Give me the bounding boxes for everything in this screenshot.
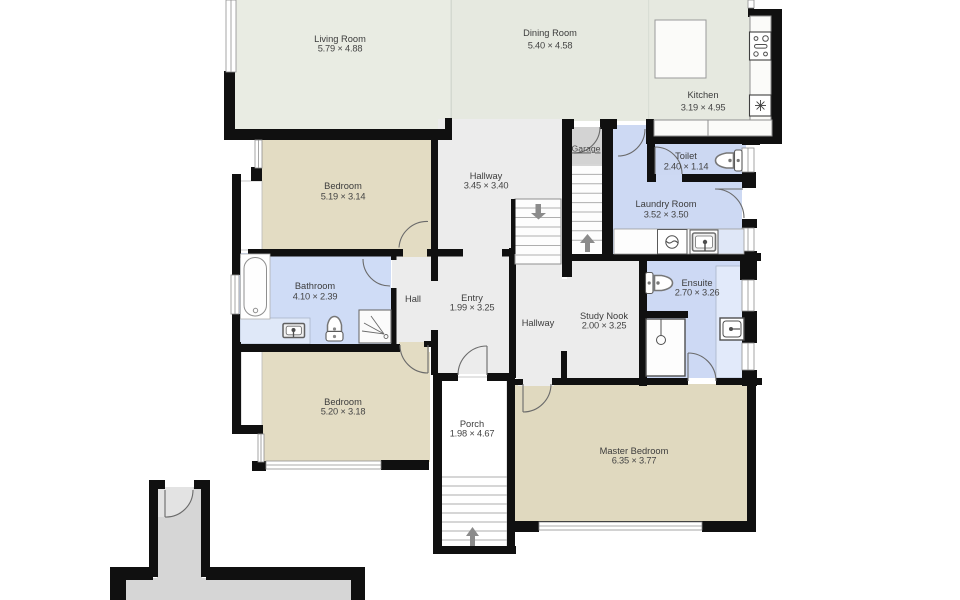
svg-text:Bathroom: Bathroom [295, 281, 336, 291]
svg-text:Entry: Entry [461, 293, 483, 303]
svg-text:5.19 × 3.14: 5.19 × 3.14 [321, 192, 366, 202]
svg-text:5.79 × 4.88: 5.79 × 4.88 [318, 44, 363, 54]
svg-text:Master Bedroom: Master Bedroom [600, 446, 669, 456]
svg-text:Kitchen: Kitchen [687, 90, 718, 100]
svg-text:Laundry Room: Laundry Room [636, 199, 697, 209]
svg-text:3.52 × 3.50: 3.52 × 3.50 [644, 210, 689, 220]
svg-text:Hall: Hall [405, 294, 421, 304]
svg-text:Toilet: Toilet [675, 151, 697, 161]
svg-text:2.40 × 1.14: 2.40 × 1.14 [664, 162, 709, 172]
svg-text:Garage: Garage [572, 144, 601, 154]
svg-text:6.35 × 3.77: 6.35 × 3.77 [612, 456, 657, 466]
svg-text:Porch: Porch [460, 419, 484, 429]
svg-text:2.00 × 3.25: 2.00 × 3.25 [582, 321, 627, 331]
svg-text:Living Room: Living Room [314, 34, 366, 44]
svg-text:Bedroom: Bedroom [324, 397, 362, 407]
svg-text:3.19 × 4.95: 3.19 × 4.95 [681, 103, 726, 113]
svg-text:2.70 × 3.26: 2.70 × 3.26 [675, 288, 720, 298]
svg-text:1.98 × 4.67: 1.98 × 4.67 [450, 429, 495, 439]
svg-text:3.45 × 3.40: 3.45 × 3.40 [464, 181, 509, 191]
svg-text:5.20 × 3.18: 5.20 × 3.18 [321, 407, 366, 417]
svg-text:Dining Room: Dining Room [523, 28, 577, 38]
svg-text:1.99 × 3.25: 1.99 × 3.25 [450, 303, 495, 313]
svg-text:Study Nook: Study Nook [580, 311, 628, 321]
svg-text:Hallway: Hallway [470, 171, 503, 181]
svg-text:Ensuite: Ensuite [681, 278, 712, 288]
svg-text:5.40 × 4.58: 5.40 × 4.58 [528, 41, 573, 51]
svg-text:4.10 × 2.39: 4.10 × 2.39 [293, 292, 338, 302]
svg-text:Hallway: Hallway [522, 318, 555, 328]
svg-text:Bedroom: Bedroom [324, 181, 362, 191]
